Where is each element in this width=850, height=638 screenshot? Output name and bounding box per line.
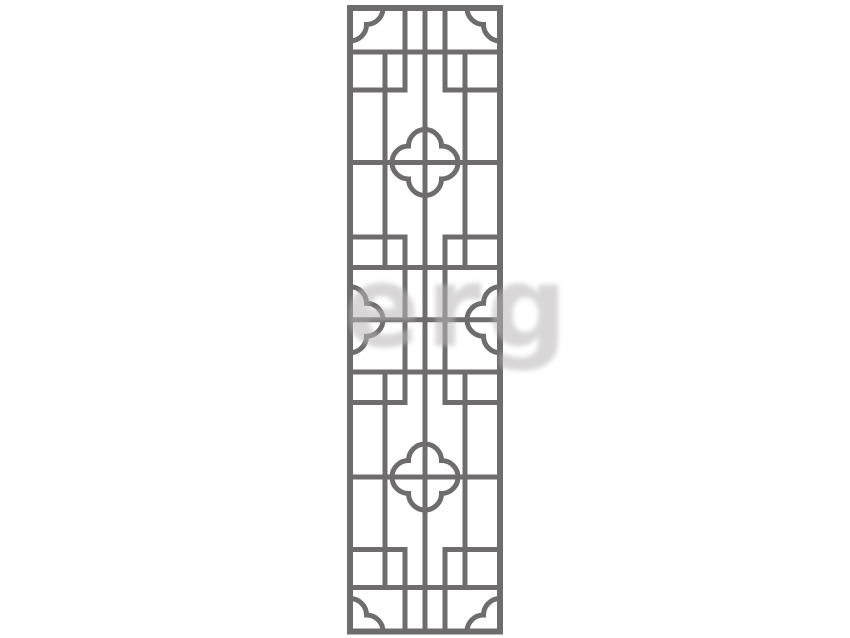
corner-cloud-bracket (350, 599, 383, 632)
corner-cloud-bracket (350, 8, 383, 41)
chinese-lattice-panel (0, 0, 850, 638)
illustration-stage: erg (0, 0, 850, 638)
corner-cloud-bracket (467, 8, 500, 41)
lattice-bars (347, 5, 503, 635)
corner-cloud-bracket (467, 599, 500, 632)
